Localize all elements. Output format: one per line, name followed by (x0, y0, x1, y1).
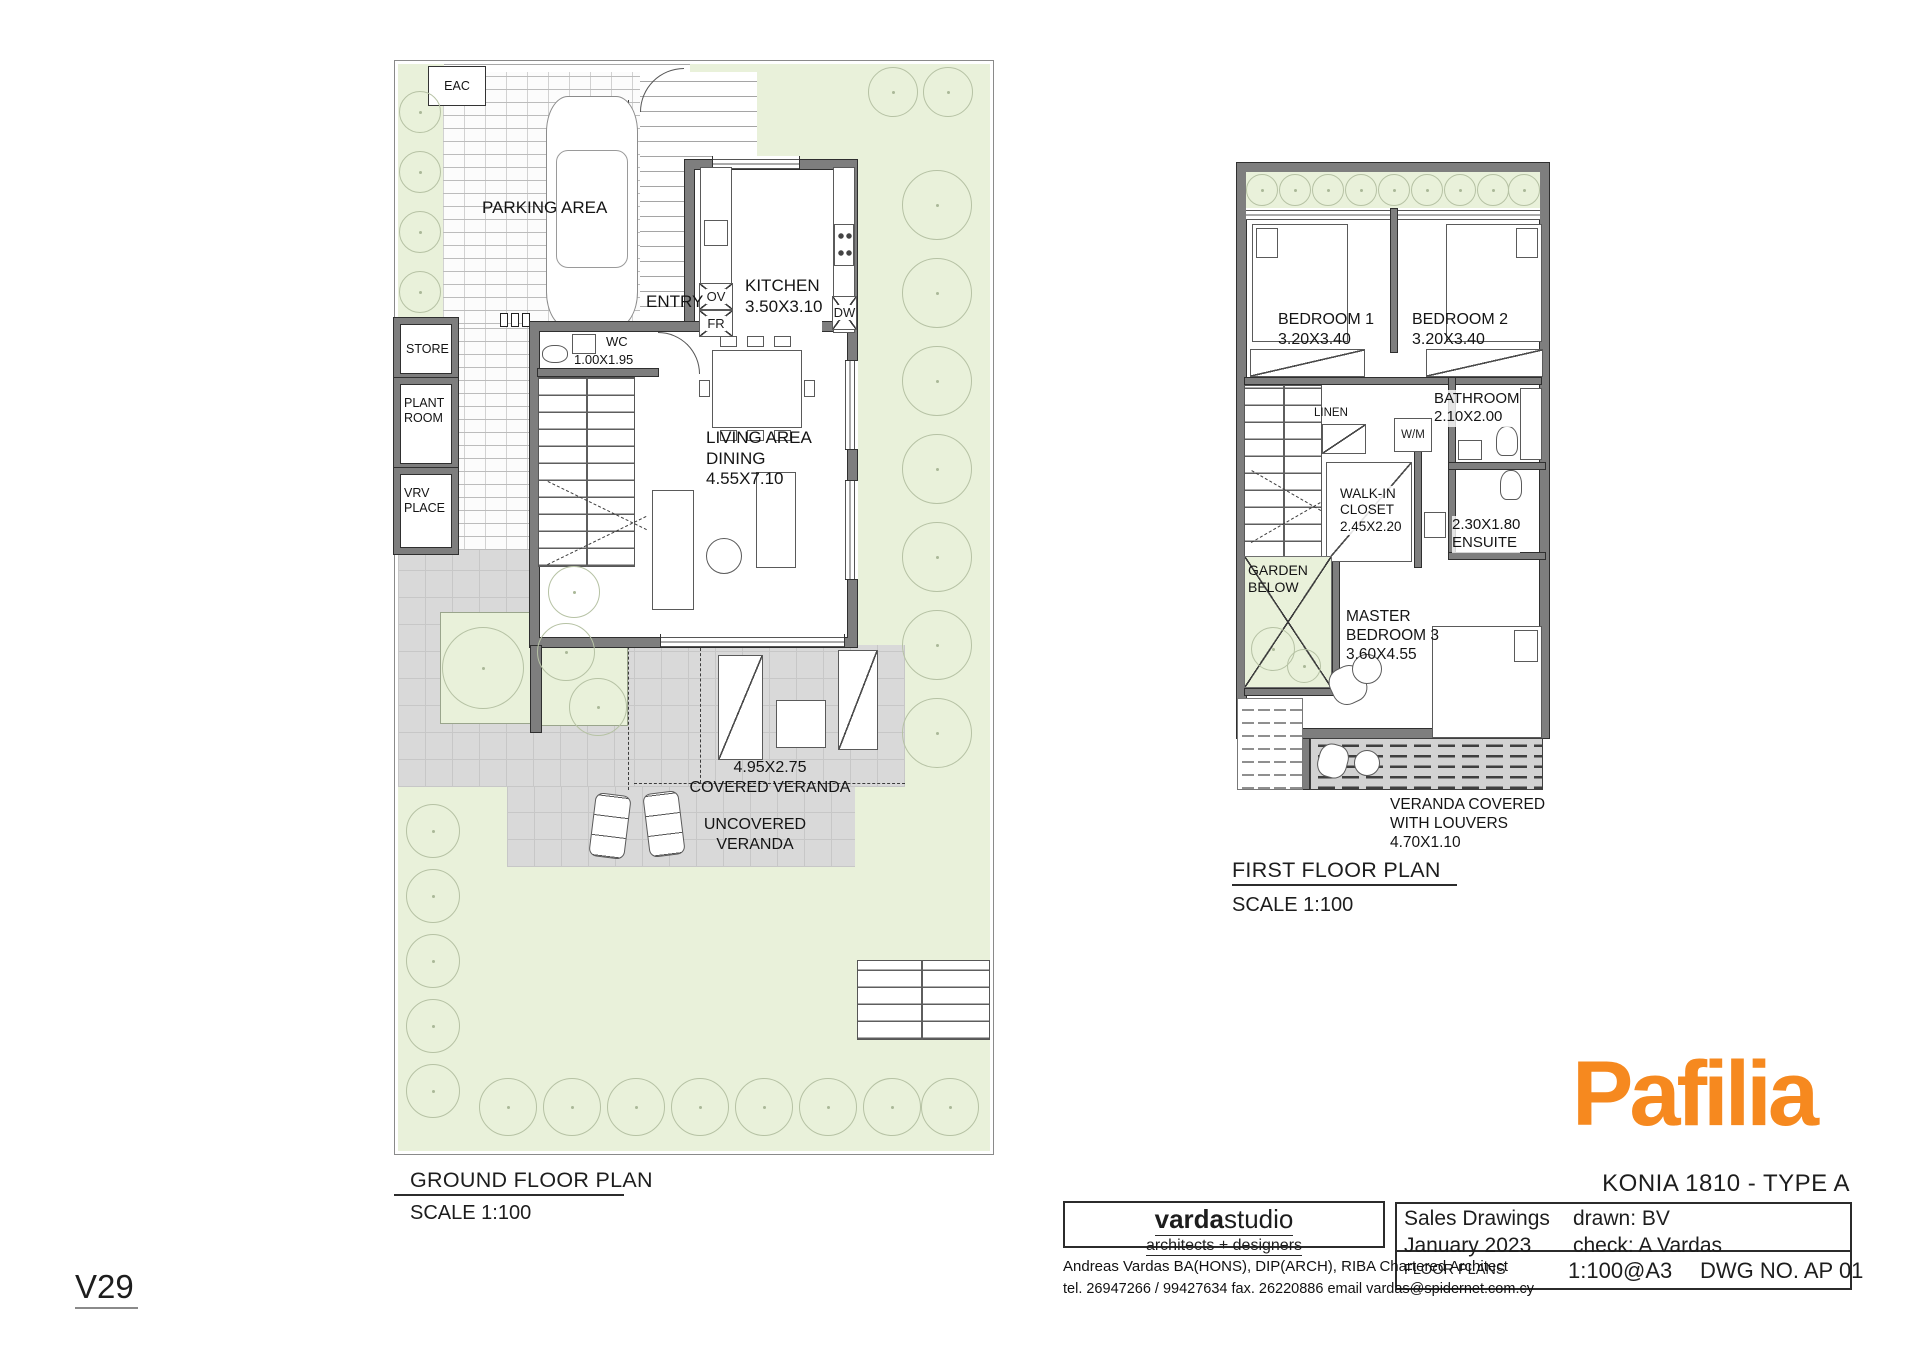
tree-icon (1444, 174, 1476, 206)
first-floor-title-rule (1232, 884, 1457, 886)
dining-chair (699, 380, 710, 397)
tree-icon (902, 434, 972, 504)
wc-toilet (542, 345, 568, 363)
bathroom-wall-h (1448, 462, 1546, 470)
revision-label: V29 (75, 1268, 138, 1309)
pafilia-logo: Pafilia (1572, 1048, 1815, 1140)
tree-icon (902, 610, 972, 680)
veranda-side-wall (1302, 738, 1310, 790)
meter-box (500, 313, 508, 327)
covered-veranda-label: 4.95X2.75 COVERED VERANDA (650, 758, 890, 797)
sofa (652, 490, 694, 610)
dishwasher-label: DW (834, 305, 856, 320)
studio-name: vardastudio (1155, 1205, 1294, 1236)
oven-box: OV (699, 283, 733, 310)
wardrobe (1250, 349, 1365, 377)
pillow (1516, 228, 1538, 258)
ensuite-basin (1424, 512, 1446, 538)
bedroom2-label: BEDROOM 2 3.20X3.40 (1412, 310, 1508, 349)
meter-box (522, 313, 530, 327)
table-issue-cell: Sales Drawings January 2023 (1404, 1206, 1550, 1260)
garden-bottom-wall (1244, 688, 1340, 696)
garden-stair-rail (921, 960, 923, 1040)
garden-stair (857, 960, 990, 1040)
tree-icon (902, 170, 972, 240)
washing-machine-label: W/M (1401, 429, 1425, 441)
tree-icon (537, 623, 595, 681)
bedroom-divider-wall (1390, 208, 1398, 353)
glass-panel (718, 655, 763, 760)
tree-icon (1279, 174, 1311, 206)
table-drawn-check-cell: drawn: BV check: A Vardas (1573, 1206, 1722, 1260)
wc-basin (572, 334, 596, 354)
first-floor-scale: SCALE 1:100 (1232, 894, 1353, 917)
tree-icon (1287, 649, 1321, 683)
wc-dim-label: 1.00X1.95 (574, 352, 633, 368)
tree-icon (406, 804, 460, 858)
linen-closet (1322, 424, 1366, 454)
living-window-right-1 (845, 360, 858, 450)
tree-icon (543, 1078, 601, 1136)
ensuite-wall-h (1448, 552, 1546, 560)
oven-label: OV (706, 289, 727, 304)
studio-tagline: architects + designers (1146, 1236, 1302, 1256)
uncovered-veranda-label: UNCOVERED VERANDA (690, 815, 820, 854)
floor-plan-sheet: EAC OV FR DW (0, 0, 1920, 1358)
walk-in-closet-label: WALK-IN CLOSET 2.45X2.20 (1340, 486, 1402, 535)
tree-icon (799, 1078, 857, 1136)
project-title: KONIA 1810 - TYPE A (1560, 1170, 1850, 1198)
dishwasher-box: DW (832, 296, 857, 330)
glass-panel (838, 650, 878, 750)
bathroom-basin (1458, 440, 1482, 460)
studio-logo-box: vardastudio architects + designers (1063, 1201, 1385, 1248)
tree-icon (548, 566, 600, 618)
staircase-rail (586, 377, 588, 567)
tree-icon (1411, 174, 1443, 206)
tree-icon (569, 678, 627, 736)
ensuite-label: 2.30X1.80 ENSUITE (1452, 516, 1520, 553)
hob (834, 224, 854, 266)
tree-icon (406, 934, 460, 988)
plant-room-label: PLANT ROOM (404, 396, 444, 427)
eac-label: EAC (444, 79, 470, 93)
wc-wall (537, 368, 659, 377)
tree-icon (1312, 174, 1344, 206)
tree-icon (1345, 174, 1377, 206)
first-floor-title: FIRST FLOOR PLAN (1232, 858, 1441, 883)
studio-name-bold: varda (1155, 1204, 1224, 1234)
tree-icon (442, 627, 524, 709)
tree-icon (902, 258, 972, 328)
studio-name-rest: studio (1224, 1204, 1293, 1234)
tree-icon (406, 1064, 460, 1118)
wardrobe (1426, 349, 1543, 377)
staircase-rail (1283, 385, 1285, 560)
coffee-table (706, 538, 742, 574)
veranda-sliding-door (660, 634, 845, 647)
entry-label: ENTRY (646, 292, 703, 313)
tree-icon (902, 522, 972, 592)
tree-icon (921, 1078, 979, 1136)
master-bedroom-label: MASTER BEDROOM 3 3.60X4.55 (1346, 608, 1439, 665)
tree-icon (671, 1078, 729, 1136)
tree-icon (1477, 174, 1509, 206)
tree-icon (399, 151, 441, 193)
tree-icon (399, 211, 441, 253)
fridge-label: FR (706, 316, 725, 331)
tree-icon (406, 869, 460, 923)
dining-chair (774, 336, 791, 347)
ground-floor-title-rule (394, 1194, 624, 1196)
meter-box (511, 313, 519, 327)
tree-icon (902, 346, 972, 416)
tree-icon (607, 1078, 665, 1136)
store-label: STORE (406, 342, 449, 357)
bathroom-label: BATHROOM 2.10X2.00 (1434, 390, 1520, 427)
bedroom-corridor-wall (1244, 377, 1542, 385)
tree-icon (479, 1078, 537, 1136)
dining-table (712, 350, 802, 428)
living-label: LIVING AREA DINING 4.55X7.10 (706, 428, 812, 490)
dining-chair (804, 380, 815, 397)
tree-icon (868, 67, 918, 117)
kitchen-label: KITCHEN 3.50X3.10 (745, 276, 823, 317)
garden-below-label: GARDEN BELOW (1248, 562, 1308, 596)
ground-floor-title: GROUND FLOOR PLAN (410, 1168, 653, 1193)
pillow (1514, 630, 1538, 662)
revision-label-wrap: V29 (75, 1268, 138, 1309)
table-dwg-no-cell: DWG NO. AP 01 (1700, 1258, 1863, 1284)
living-window-right-2 (845, 480, 858, 580)
bathroom-toilet (1496, 426, 1518, 456)
tree-icon (399, 91, 441, 133)
veranda-louvers-label: VERANDA COVERED WITH LOUVERS 4.70X1.10 (1390, 796, 1545, 853)
ensuite-toilet (1500, 470, 1522, 500)
dining-chair (747, 336, 764, 347)
tree-icon (399, 271, 441, 313)
ground-floor-scale: SCALE 1:100 (410, 1202, 531, 1225)
tree-icon (902, 698, 972, 768)
fridge-box: FR (699, 310, 733, 337)
tree-icon (863, 1078, 921, 1136)
architect-contact: tel. 26947266 / 99427634 fax. 26220886 e… (1063, 1281, 1534, 1297)
veranda-table (1354, 750, 1380, 776)
architect-credentials: Andreas Vardas BA(HONS), DIP(ARCH), RIBA… (1063, 1258, 1508, 1275)
parking-area-label: PARKING AREA (482, 198, 607, 219)
sun-lounger (642, 790, 686, 858)
shower-tray (1520, 388, 1542, 460)
veranda-table (776, 700, 826, 748)
bedroom1-label: BEDROOM 1 3.20X3.40 (1278, 310, 1374, 349)
kitchen-sink (704, 220, 728, 246)
vrv-place-label: VRV PLACE (404, 486, 445, 517)
linen-label: LINEN (1314, 406, 1348, 420)
tree-icon (1508, 174, 1540, 206)
washing-machine-box: W/M (1394, 418, 1432, 452)
tree-icon (735, 1078, 793, 1136)
table-print-scale-cell: 1:100@A3 (1568, 1258, 1672, 1284)
tree-icon (406, 999, 460, 1053)
pillow (1256, 228, 1278, 258)
tree-icon (1378, 174, 1410, 206)
dining-chair (720, 336, 737, 347)
planter-hatch (1237, 698, 1303, 790)
wc-label: WC (606, 334, 628, 350)
tree-icon (1246, 174, 1278, 206)
tree-icon (923, 67, 973, 117)
